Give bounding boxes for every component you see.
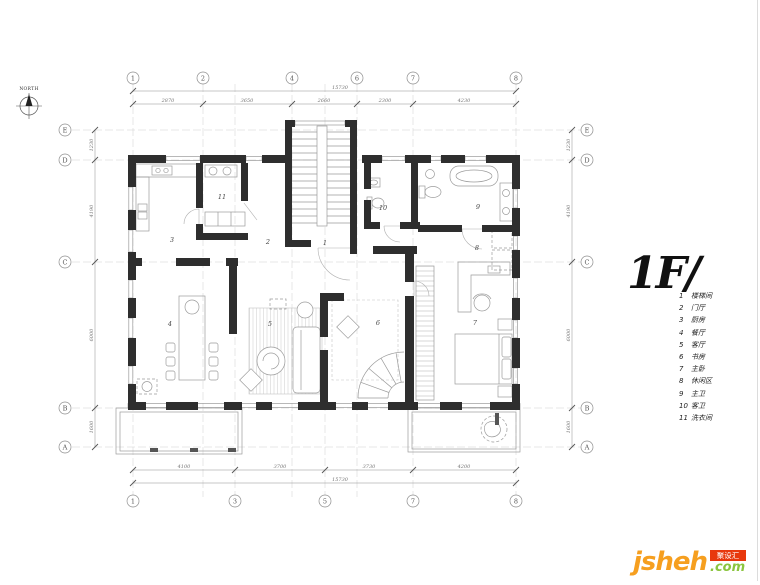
room-label-3: 3: [170, 236, 174, 244]
grid-bubble-bot-3: 3: [233, 498, 237, 506]
legend-item: 8休闲区: [679, 375, 712, 387]
grid-bubble-right-D: D: [584, 157, 589, 165]
dim-top-5: 4230: [457, 98, 472, 104]
north-label: NORTH: [19, 86, 38, 92]
grid-bubble-bot-5: 5: [323, 498, 327, 506]
room-label-6: 6: [376, 319, 380, 327]
balcony-right: [408, 408, 520, 452]
dim-left-2: 4190: [89, 204, 95, 219]
grid-bubble-top-4: 4: [290, 75, 294, 83]
grid-bubble-top-1: 1: [131, 75, 135, 83]
room-label-8: 8: [475, 244, 479, 252]
north-arrow: NORTH: [16, 86, 42, 119]
room-label-11: 11: [218, 193, 226, 201]
room-label-2: 2: [265, 238, 270, 246]
dim-right-1: 1230: [566, 138, 572, 152]
master-bath-fixtures: [419, 166, 513, 221]
bedroom-furniture: [416, 262, 512, 400]
dim-bot-1: 4100: [177, 464, 192, 470]
living-furniture: [240, 299, 322, 394]
grid-bubble-bot-8: 8: [514, 498, 518, 506]
dim-right-3: 6000: [566, 328, 572, 342]
logo-brand-text[interactable]: jsheh: [633, 547, 707, 577]
grid-bubble-top-8: 8: [514, 75, 518, 83]
grid-bubble-left-C: C: [63, 259, 68, 267]
room-label-7: 7: [473, 319, 478, 327]
legend-item: 7主卧: [679, 363, 712, 375]
legend-item: 1楼梯间: [679, 290, 712, 302]
dining-furniture: [137, 296, 218, 394]
room-legend: 1楼梯间 2门厅 3厨房 4餐厅 5客厅 6书房 7主卧 8休闲区 9主卫 10…: [679, 290, 712, 424]
grid-bubble-left-E: E: [63, 127, 68, 135]
legend-item: 4餐厅: [679, 327, 712, 339]
dimension-chains: 15730 2870 3650 2660 2300 4230 4100 3700…: [89, 85, 575, 486]
dim-bot-3: 3730: [363, 464, 377, 470]
grid-bubble-left-A: A: [62, 444, 68, 452]
legend-item: 6书房: [679, 351, 712, 363]
grid-bubble-top-6: 6: [355, 75, 359, 83]
grid-bubble-top-2: 2: [201, 75, 205, 83]
dim-top-3: 2660: [317, 98, 332, 104]
kitchen-fixtures: [136, 164, 198, 231]
study-furniture: [332, 300, 404, 398]
grid-bubble-left-B: B: [63, 405, 68, 413]
legend-item: 5客厅: [679, 339, 712, 351]
page-right-border: [757, 0, 758, 581]
legend-item: 9主卫: [679, 388, 712, 400]
dim-bot-2: 3700: [274, 464, 288, 470]
dim-top-1: 2870: [161, 98, 176, 104]
grid-bubble-left-D: D: [62, 157, 67, 165]
dim-top-overall: 15730: [332, 85, 349, 91]
grid-bubble-bot-7: 7: [411, 498, 415, 506]
grid-bubble-right-A: A: [584, 444, 590, 452]
dim-left-1: 1230: [89, 138, 95, 152]
dim-bot-overall: 15730: [332, 477, 349, 483]
dim-right-2: 4190: [566, 204, 572, 219]
staircase: [292, 126, 350, 226]
room-label-9: 9: [476, 203, 480, 211]
room-label-1: 1: [323, 239, 327, 247]
north-needle-icon: [26, 94, 33, 106]
grid-bubble-bot-1: 1: [131, 498, 135, 506]
grid-bubble-right-E: E: [585, 127, 590, 135]
dim-left-4: 1600: [89, 420, 95, 434]
legend-item: 3厨房: [679, 314, 712, 326]
legend-item: 10客卫: [679, 400, 712, 412]
grid-bubble-right-C: C: [585, 259, 590, 267]
door-swings: [184, 203, 482, 296]
logo-tld-text[interactable]: .com: [710, 560, 745, 575]
dim-bot-4: 4200: [457, 464, 472, 470]
dim-right-4: 1600: [566, 420, 572, 434]
jsheh-logo[interactable]: jsheh 聚设汇 .com: [633, 547, 759, 579]
room-label-5: 5: [268, 320, 272, 328]
dim-left-3: 6000: [89, 328, 95, 342]
grid-bubble-right-B: B: [585, 405, 590, 413]
grid-bubble-top-7: 7: [411, 75, 415, 83]
room-label-10: 10: [379, 204, 387, 212]
leisure-wardrobes: [492, 228, 512, 270]
legend-item: 2门厅: [679, 302, 712, 314]
dim-top-2: 3650: [241, 98, 255, 104]
dim-top-4: 2300: [378, 98, 393, 104]
legend-item: 11洗衣间: [679, 412, 712, 424]
room-label-4: 4: [167, 320, 172, 328]
